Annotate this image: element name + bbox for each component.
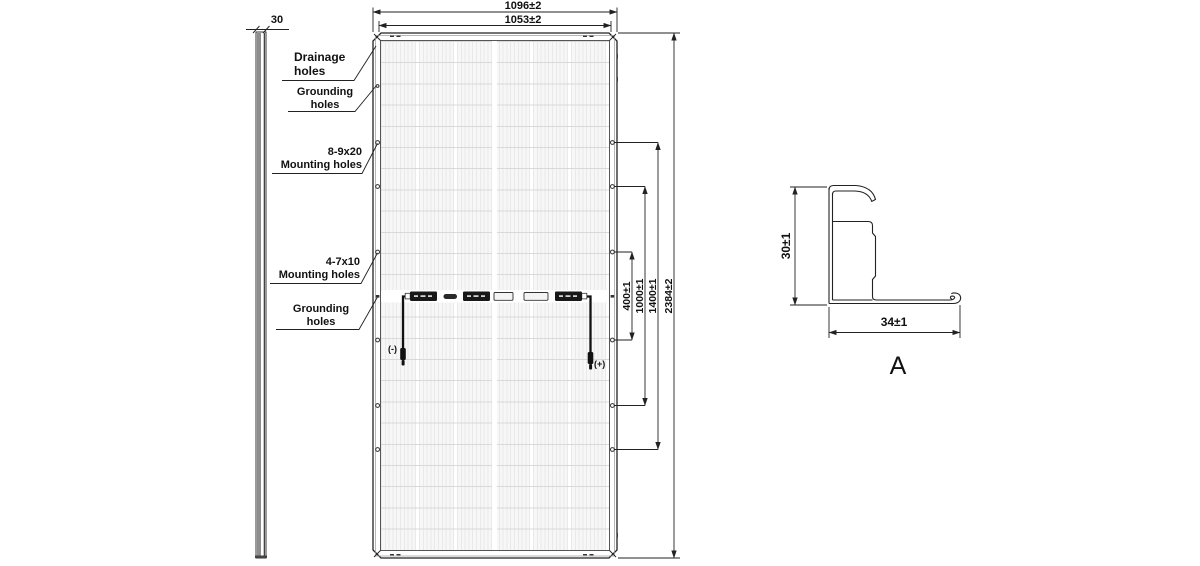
technical-drawing-canvas: 30 1096±2 1053±2 Drainage holes Groundin… (0, 0, 1200, 566)
mc4-connector-negative (400, 348, 406, 366)
dimension-lines (373, 8, 680, 559)
mc4-connector-positive (588, 352, 594, 370)
callout-leaders (270, 46, 378, 330)
frame-cross-section (790, 186, 961, 339)
junction-boxes (405, 292, 587, 302)
side-view-profile (246, 26, 289, 558)
grounding-holes (376, 85, 614, 298)
drawing-linework (0, 0, 1200, 566)
junction-box-assembly (382, 290, 609, 370)
